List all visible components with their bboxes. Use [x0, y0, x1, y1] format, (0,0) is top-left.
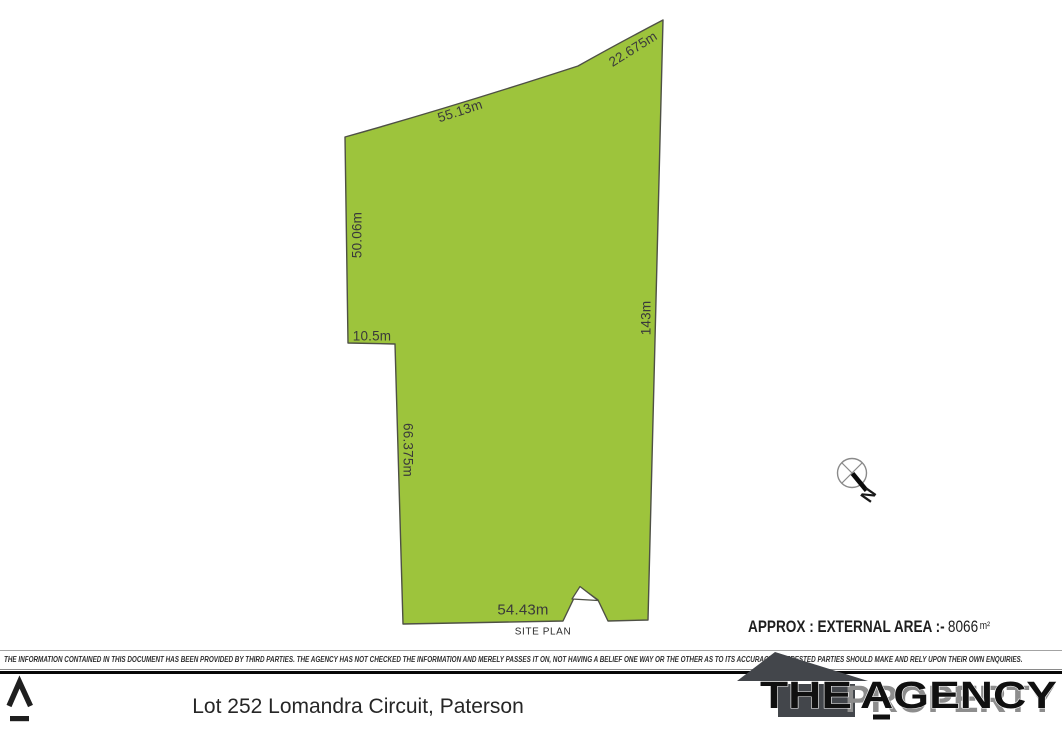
property-address-title: Lot 252 Lomandra Circuit, Paterson: [192, 695, 524, 719]
external-area-note: APPROX : EXTERNAL AREA :-8066m²: [748, 617, 990, 637]
lot-polygon: [345, 20, 663, 624]
dimension-step: 10.5m: [353, 329, 392, 344]
area-value: 8066: [945, 617, 978, 636]
the-agency-property-logo: PROPERTY THE AGENCY: [690, 645, 1062, 730]
logo-word-the: THE: [760, 675, 852, 717]
area-label: APPROX : EXTERNAL AREA :-: [748, 617, 945, 636]
logo-dash: [873, 715, 890, 720]
lot-boundary-drawing: [0, 0, 1062, 660]
north-compass: N: [828, 450, 898, 512]
site-plan-page: 22.675m 55.13m 50.06m 10.5m 66.375m 143m…: [0, 0, 1062, 730]
north-letter: N: [857, 484, 881, 506]
dimension-left-lower: 66.375m: [401, 423, 416, 477]
agency-mark-icon: [2, 674, 44, 728]
logo-word-agency: AGENCY: [860, 675, 1057, 717]
dimension-right: 143m: [639, 301, 654, 336]
dimension-left-upper: 50.06m: [350, 212, 365, 258]
dimension-bottom: 54.43m: [497, 602, 548, 619]
area-unit: m²: [978, 620, 990, 632]
site-plan-caption: SITE PLAN: [515, 627, 572, 638]
